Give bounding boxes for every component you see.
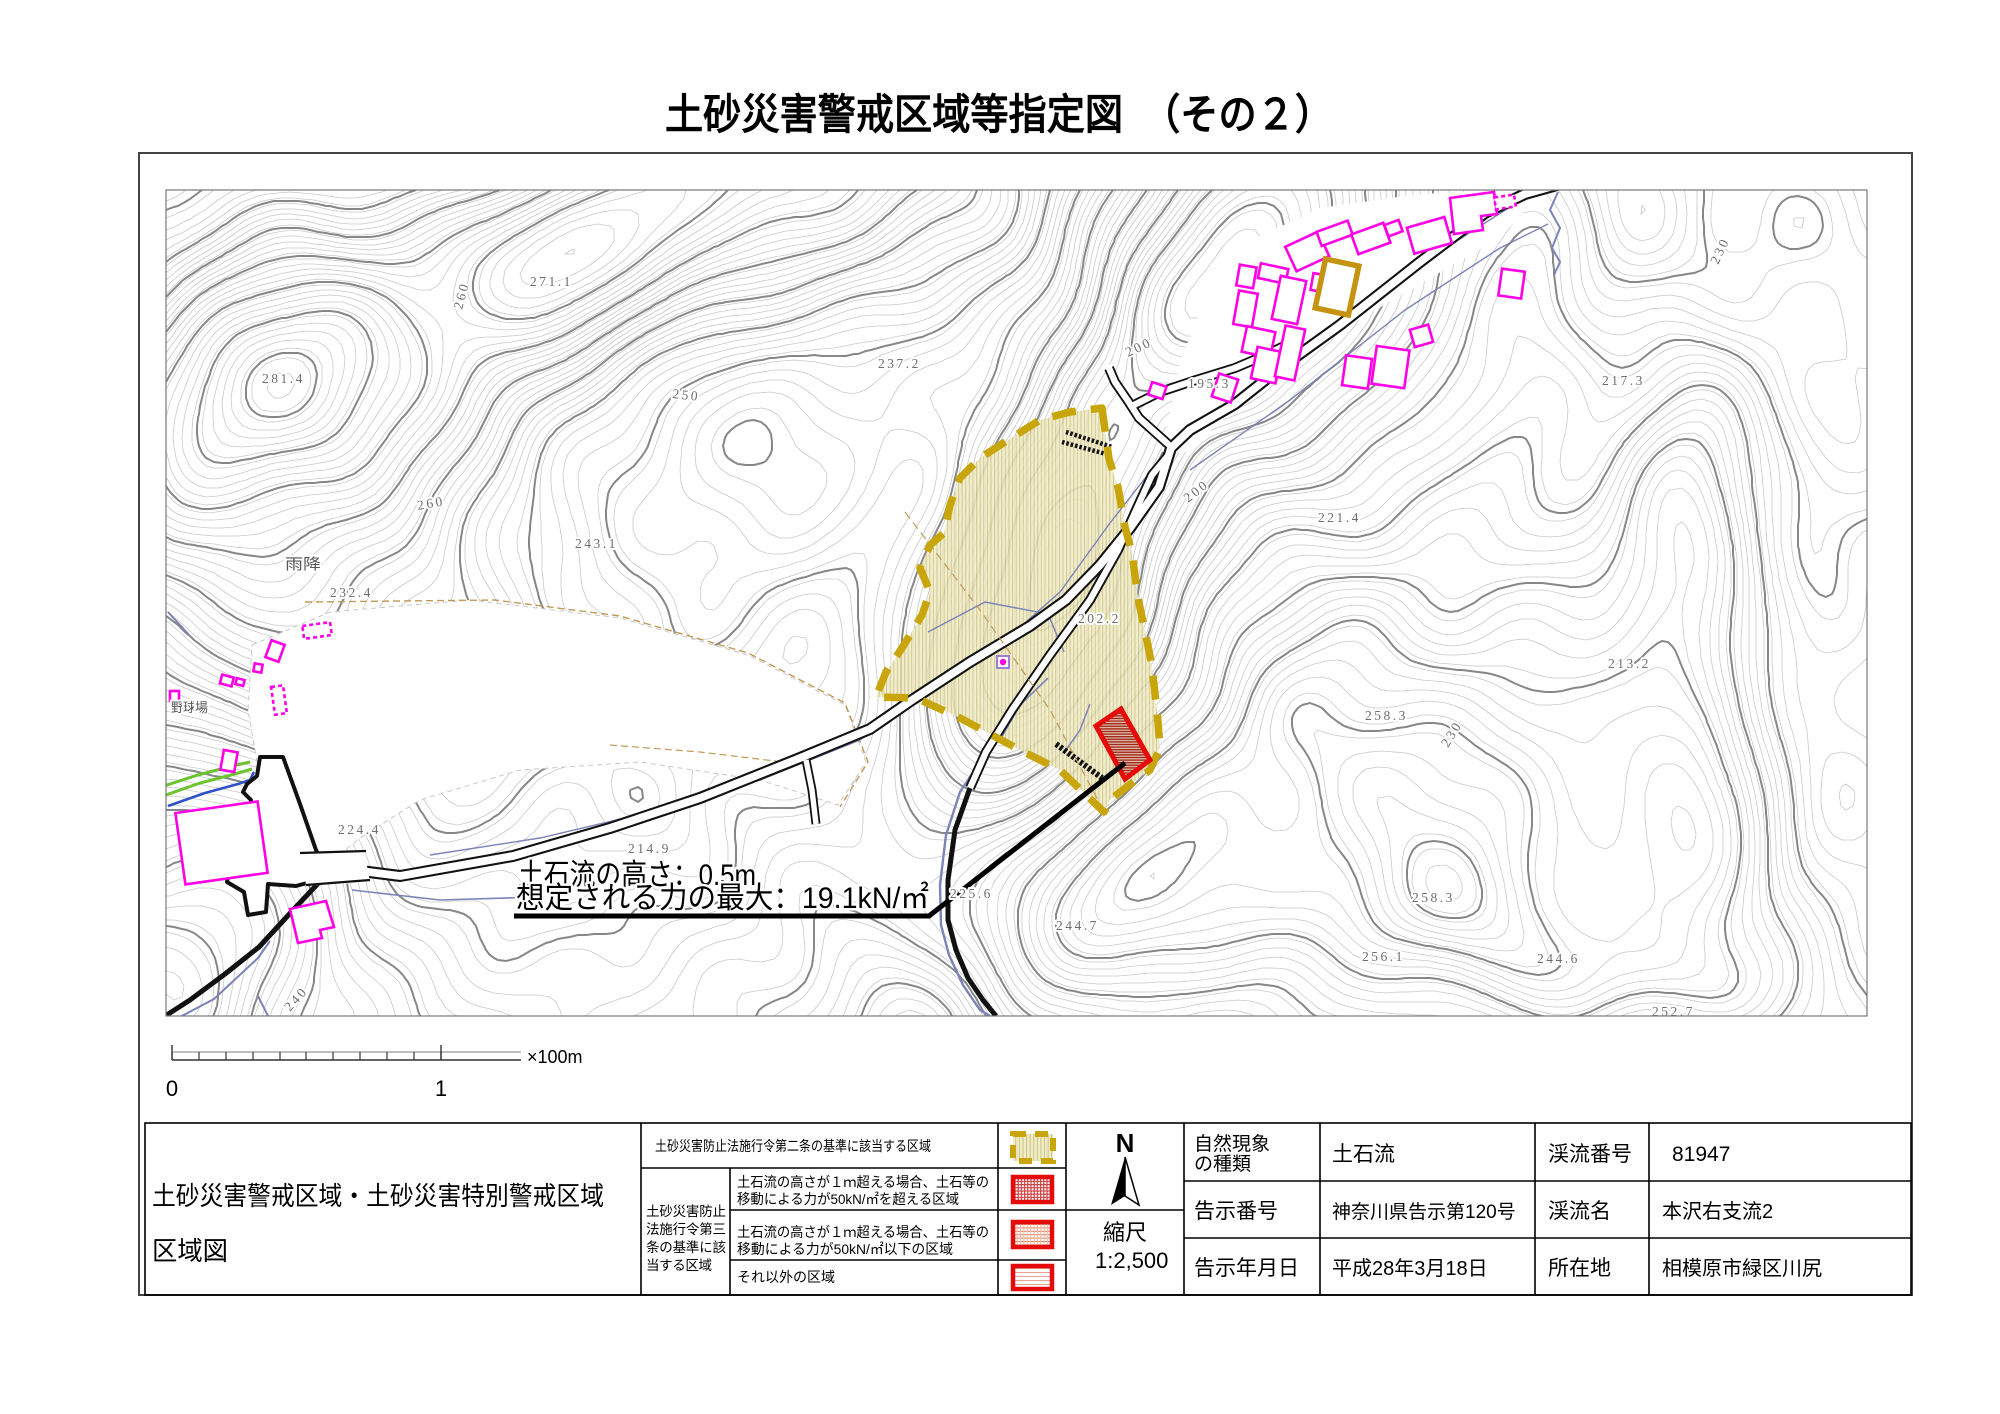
svg-text:221.4: 221.4 <box>1318 510 1361 525</box>
svg-text:土砂災害防止: 土砂災害防止 <box>646 1204 726 1219</box>
svg-text:224.4: 224.4 <box>338 822 381 837</box>
svg-text:214.9: 214.9 <box>628 841 671 856</box>
svg-text:土砂災害警戒区域等指定図 （その２）: 土砂災害警戒区域等指定図 （その２） <box>665 91 1333 138</box>
svg-text:移動による力が50kN/㎡を超える区域: 移動による力が50kN/㎡を超える区域 <box>737 1191 959 1207</box>
svg-text:0: 0 <box>166 1076 178 1101</box>
svg-text:232.4: 232.4 <box>330 585 373 600</box>
svg-text:N: N <box>1116 1128 1135 1158</box>
svg-text:平成28年3月18日: 平成28年3月18日 <box>1332 1257 1488 1280</box>
svg-text:土石流: 土石流 <box>1332 1143 1395 1166</box>
svg-text:想定される力の最大：19.1kN/㎡: 想定される力の最大：19.1kN/㎡ <box>516 882 929 915</box>
svg-text:×100m: ×100m <box>527 1047 583 1067</box>
svg-text:225.6: 225.6 <box>950 886 993 901</box>
svg-text:258.3: 258.3 <box>1365 708 1408 723</box>
svg-text:の種類: の種類 <box>1194 1153 1251 1175</box>
svg-text:213.2: 213.2 <box>1608 656 1651 671</box>
svg-text:195.3: 195.3 <box>1188 376 1231 391</box>
svg-text:神奈川県告示第120号: 神奈川県告示第120号 <box>1332 1201 1516 1223</box>
svg-text:81947: 81947 <box>1672 1143 1730 1166</box>
svg-text:移動による力が50kN/㎡以下の区域: 移動による力が50kN/㎡以下の区域 <box>737 1241 953 1257</box>
svg-text:告示番号: 告示番号 <box>1194 1200 1278 1223</box>
svg-text:土砂災害防止法施行令第二条の基準に該当する区域: 土砂災害防止法施行令第二条の基準に該当する区域 <box>655 1138 931 1154</box>
svg-text:当する区域: 当する区域 <box>646 1258 712 1273</box>
svg-text:258.3: 258.3 <box>1412 890 1455 905</box>
svg-text:281.4: 281.4 <box>262 371 305 386</box>
svg-text:区域図: 区域図 <box>152 1236 228 1266</box>
svg-text:250: 250 <box>672 386 701 404</box>
svg-text:土砂災害警戒区域・土砂災害特別警戒区域: 土砂災害警戒区域・土砂災害特別警戒区域 <box>152 1181 604 1211</box>
svg-text:1: 1 <box>435 1076 447 1101</box>
svg-text:土石流の高さが１ｍ超える場合、土石等の: 土石流の高さが１ｍ超える場合、土石等の <box>737 1224 989 1240</box>
svg-text:それ以外の区域: それ以外の区域 <box>737 1269 835 1285</box>
svg-text:自然現象: 自然現象 <box>1194 1133 1270 1155</box>
svg-text:244.7: 244.7 <box>1056 918 1099 933</box>
svg-text:1:2,500: 1:2,500 <box>1095 1248 1168 1273</box>
svg-text:法施行令第三: 法施行令第三 <box>646 1221 726 1237</box>
svg-text:243.1: 243.1 <box>575 536 618 551</box>
svg-text:所在地: 所在地 <box>1548 1257 1611 1280</box>
svg-text:土石流の高さが１ｍ超える場合、土石等の: 土石流の高さが１ｍ超える場合、土石等の <box>737 1174 989 1190</box>
svg-text:217.3: 217.3 <box>1602 373 1645 388</box>
svg-text:条の基準に該: 条の基準に該 <box>646 1239 726 1255</box>
svg-text:237.2: 237.2 <box>878 356 921 371</box>
svg-text:雨降: 雨降 <box>285 556 321 573</box>
svg-text:縮尺: 縮尺 <box>1103 1220 1147 1245</box>
svg-text:244.6: 244.6 <box>1537 951 1580 966</box>
svg-text:渓流番号: 渓流番号 <box>1548 1143 1632 1166</box>
svg-text:271.1: 271.1 <box>530 274 573 289</box>
svg-text:202.2: 202.2 <box>1078 611 1121 626</box>
svg-text:相模原市緑区川尻: 相模原市緑区川尻 <box>1662 1257 1822 1280</box>
svg-text:本沢右支流2: 本沢右支流2 <box>1662 1200 1773 1223</box>
svg-text:野球場: 野球場 <box>171 700 208 715</box>
svg-text:256.1: 256.1 <box>1362 949 1405 964</box>
svg-text:渓流名: 渓流名 <box>1548 1200 1611 1223</box>
svg-text:告示年月日: 告示年月日 <box>1194 1257 1299 1280</box>
